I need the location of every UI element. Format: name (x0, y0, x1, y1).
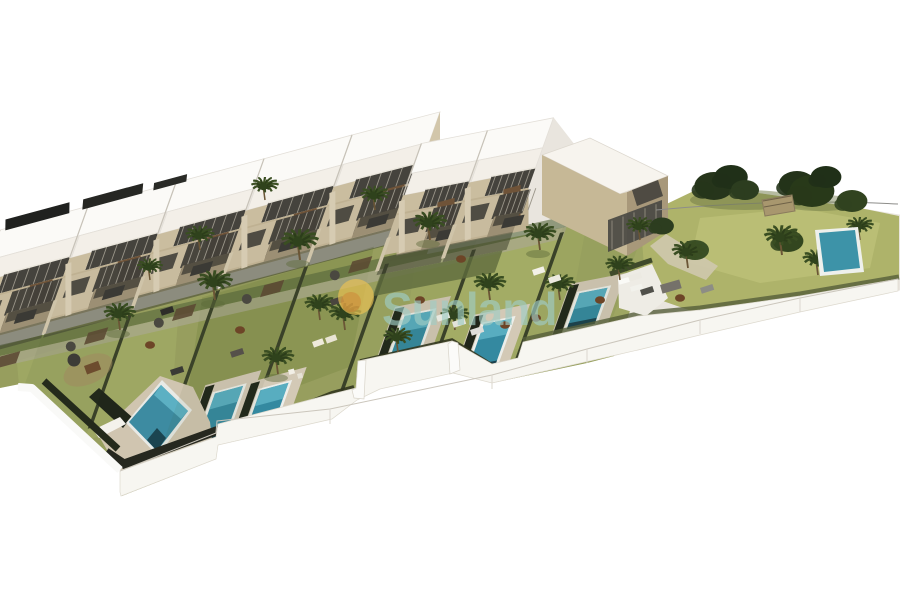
svg-text:Sunland: Sunland (382, 283, 556, 335)
